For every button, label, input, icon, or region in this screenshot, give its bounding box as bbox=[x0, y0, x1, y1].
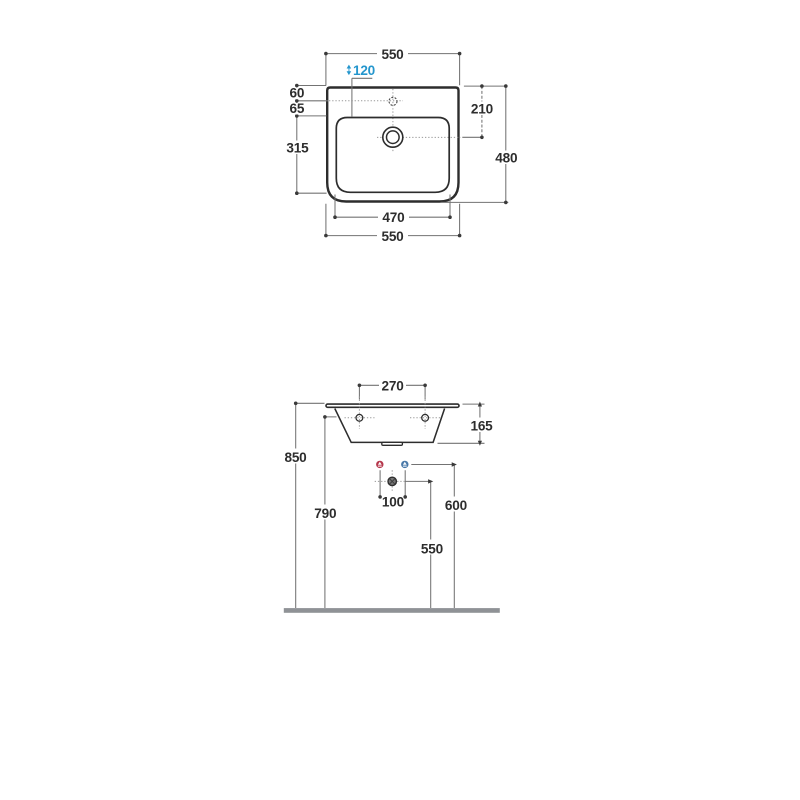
svg-text:60: 60 bbox=[290, 86, 305, 101]
svg-text:550: 550 bbox=[381, 229, 403, 244]
svg-text:210: 210 bbox=[471, 101, 493, 116]
svg-text:550: 550 bbox=[421, 542, 443, 557]
svg-text:315: 315 bbox=[286, 140, 309, 155]
svg-text:165: 165 bbox=[470, 418, 493, 433]
svg-text:270: 270 bbox=[382, 378, 404, 393]
svg-text:480: 480 bbox=[495, 150, 517, 165]
svg-text:600: 600 bbox=[445, 498, 467, 513]
svg-text:850: 850 bbox=[284, 450, 306, 465]
svg-text:790: 790 bbox=[314, 506, 336, 521]
svg-text:120: 120 bbox=[353, 63, 375, 78]
svg-text:470: 470 bbox=[382, 210, 404, 225]
svg-text:550: 550 bbox=[381, 47, 403, 62]
svg-text:65: 65 bbox=[290, 101, 305, 116]
svg-text:100: 100 bbox=[382, 495, 404, 510]
